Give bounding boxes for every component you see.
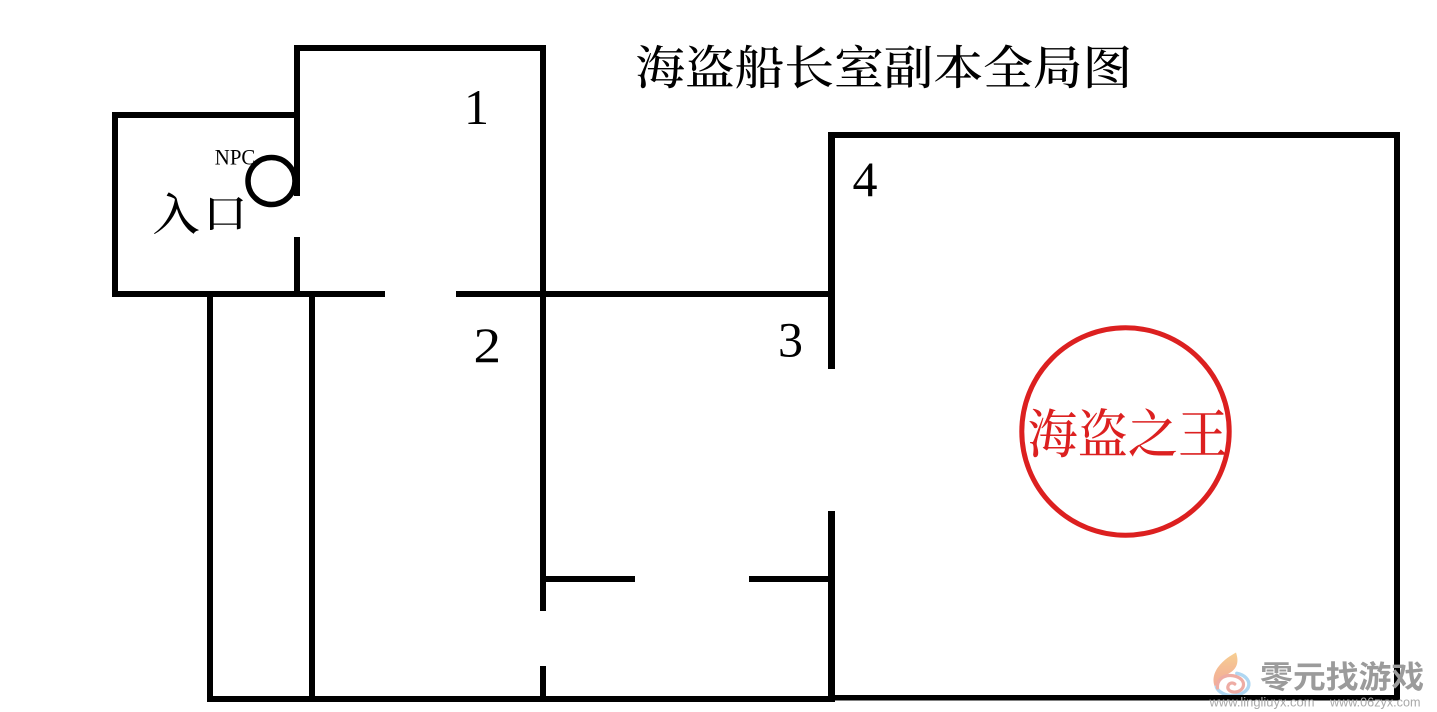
svg-text:www.lingliuyx.com: www.lingliuyx.com bbox=[1209, 695, 1315, 710]
svg-text:1: 1 bbox=[464, 79, 489, 135]
svg-text:NPC: NPC bbox=[215, 144, 256, 169]
svg-text:3: 3 bbox=[778, 312, 803, 368]
svg-text:4: 4 bbox=[853, 151, 878, 207]
svg-text:www.06zyx.com: www.06zyx.com bbox=[1329, 695, 1420, 710]
svg-text:2: 2 bbox=[474, 317, 502, 373]
